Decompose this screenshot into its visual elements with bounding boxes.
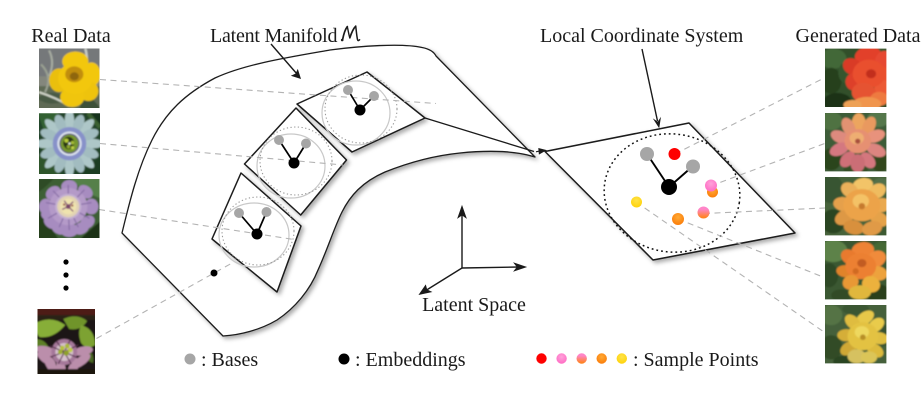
svg-text:Local Coordinate System: Local Coordinate System — [540, 25, 744, 47]
svg-text:Real Data: Real Data — [31, 25, 111, 47]
svg-text:: Bases: : Bases — [201, 349, 258, 371]
svg-text:: Embeddings: : Embeddings — [355, 349, 466, 371]
svg-text:: Sample Points: : Sample Points — [633, 349, 759, 371]
svg-text:Generated Data: Generated Data — [796, 25, 921, 47]
svg-text:Latent Space: Latent Space — [422, 294, 526, 316]
svg-text:Latent Manifold: Latent Manifold — [210, 25, 337, 47]
